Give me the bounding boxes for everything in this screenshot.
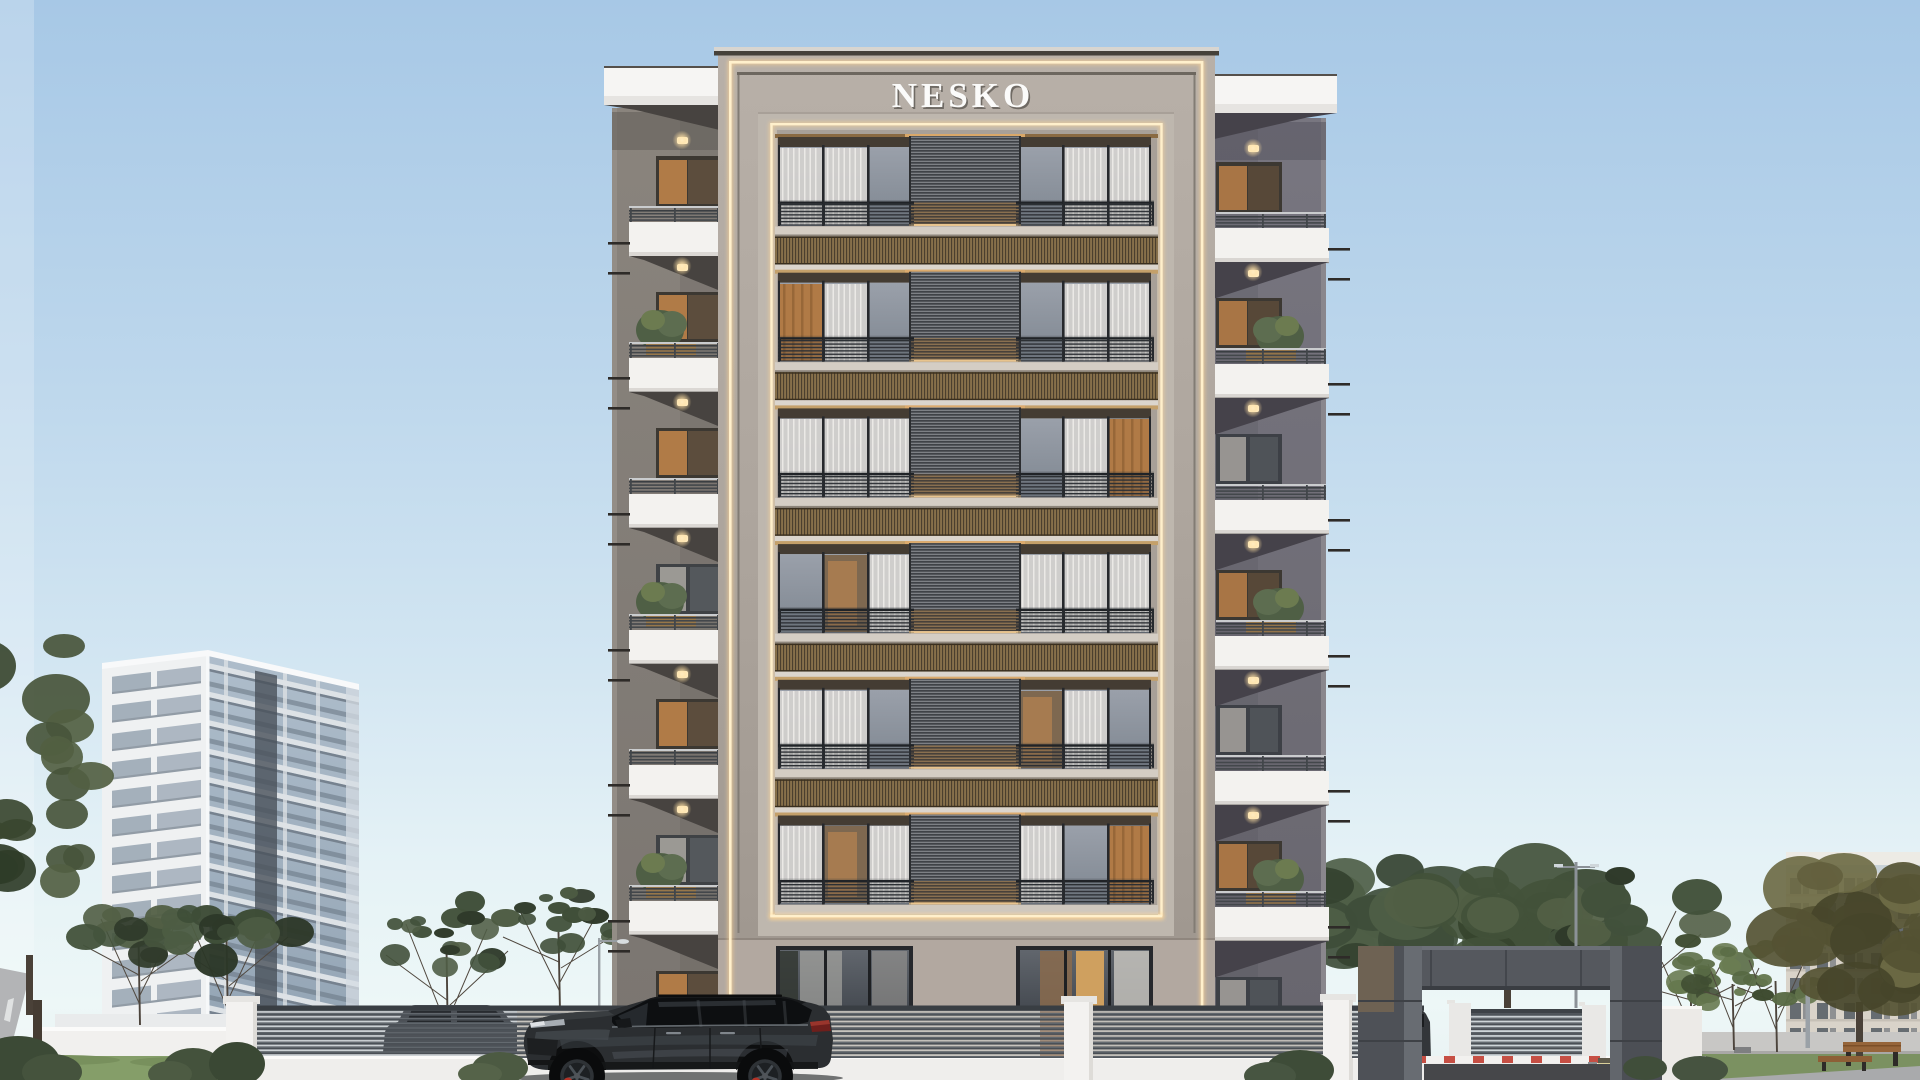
svg-text:NESKO: NESKO xyxy=(892,76,1035,115)
